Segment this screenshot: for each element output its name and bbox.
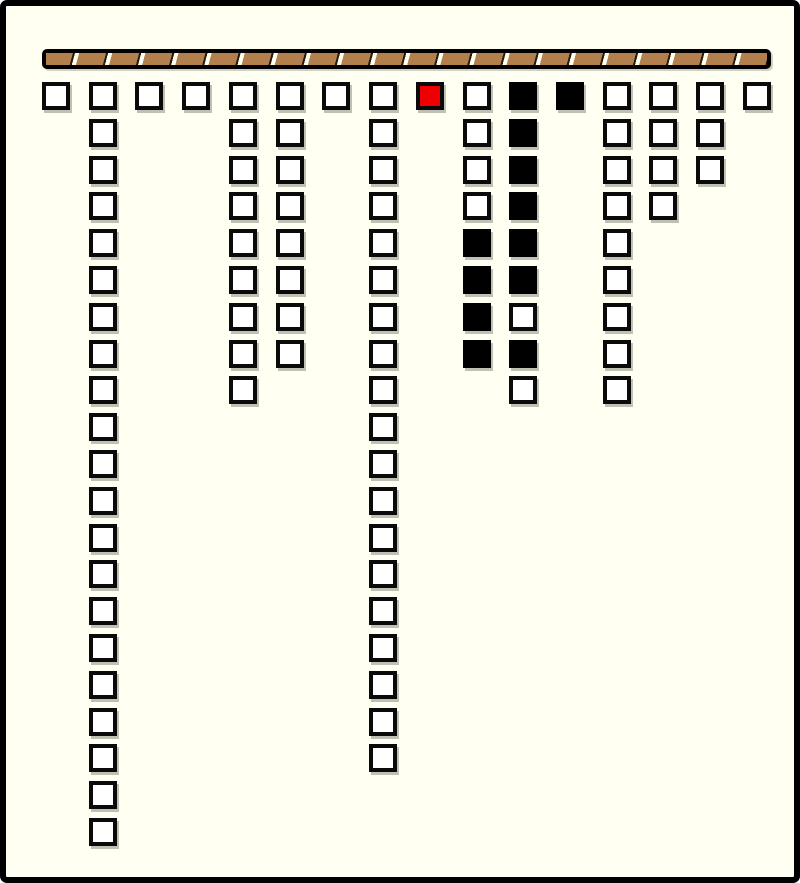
chain-cell-white[interactable] <box>229 376 257 404</box>
chain-cell-white[interactable] <box>649 192 677 220</box>
chain-cell-white[interactable] <box>276 340 304 368</box>
chain-cell-white[interactable] <box>369 340 397 368</box>
rope-stripes-pattern <box>46 53 767 65</box>
chain-cell-white[interactable] <box>369 634 397 662</box>
chain-cell-white[interactable] <box>276 192 304 220</box>
chain-cell-white[interactable] <box>229 192 257 220</box>
chain-cell-white[interactable] <box>369 82 397 110</box>
chain-cell-white[interactable] <box>369 413 397 441</box>
chain-cell-white[interactable] <box>89 450 117 478</box>
chain-cell-white[interactable] <box>182 82 210 110</box>
chain-cell-black[interactable] <box>463 303 491 331</box>
chain-cell-white[interactable] <box>276 156 304 184</box>
chain-cell-white[interactable] <box>229 156 257 184</box>
chain-cell-white[interactable] <box>135 82 163 110</box>
chain-cell-white[interactable] <box>89 634 117 662</box>
chain-cell-white[interactable] <box>89 597 117 625</box>
chain-cell-white[interactable] <box>369 560 397 588</box>
chain-cell-black[interactable] <box>509 266 537 294</box>
chain-cell-white[interactable] <box>369 597 397 625</box>
chain-cell-white[interactable] <box>276 82 304 110</box>
rope-rail <box>42 49 771 69</box>
chain-cell-white[interactable] <box>89 156 117 184</box>
chain-cell-white[interactable] <box>276 303 304 331</box>
chain-cell-black[interactable] <box>509 156 537 184</box>
chain-cell-white[interactable] <box>369 450 397 478</box>
chain-cell-white[interactable] <box>369 744 397 772</box>
chain-cell-white[interactable] <box>369 487 397 515</box>
chain-cell-white[interactable] <box>649 119 677 147</box>
chain-cell-white[interactable] <box>603 156 631 184</box>
chain-cell-white[interactable] <box>89 744 117 772</box>
chain-cell-white[interactable] <box>89 229 117 257</box>
chain-cell-white[interactable] <box>229 229 257 257</box>
chain-cell-white[interactable] <box>42 82 70 110</box>
chain-cell-white[interactable] <box>229 266 257 294</box>
chain-cell-black[interactable] <box>509 192 537 220</box>
chain-cell-white[interactable] <box>649 82 677 110</box>
chain-cell-white[interactable] <box>603 376 631 404</box>
chain-cell-white[interactable] <box>369 156 397 184</box>
chain-cell-white[interactable] <box>89 340 117 368</box>
chain-cell-white[interactable] <box>89 671 117 699</box>
chain-cell-white[interactable] <box>322 82 350 110</box>
chain-cell-black[interactable] <box>463 229 491 257</box>
chain-cell-white[interactable] <box>89 708 117 736</box>
chain-cell-white[interactable] <box>603 266 631 294</box>
chain-cell-white[interactable] <box>369 671 397 699</box>
chain-cell-white[interactable] <box>369 229 397 257</box>
chain-cell-white[interactable] <box>603 303 631 331</box>
chain-cell-white[interactable] <box>369 266 397 294</box>
chain-cell-white[interactable] <box>649 156 677 184</box>
chain-cell-black[interactable] <box>509 229 537 257</box>
chain-cell-white[interactable] <box>89 781 117 809</box>
chain-cell-black[interactable] <box>509 119 537 147</box>
chain-cell-white[interactable] <box>369 192 397 220</box>
chain-cell-white[interactable] <box>603 229 631 257</box>
chain-cell-white[interactable] <box>276 119 304 147</box>
chain-cell-black[interactable] <box>556 82 584 110</box>
chains-board-frame <box>0 0 800 883</box>
chain-cell-white[interactable] <box>603 119 631 147</box>
chain-cell-white[interactable] <box>89 303 117 331</box>
chain-cell-white[interactable] <box>369 119 397 147</box>
chain-cell-white[interactable] <box>696 119 724 147</box>
chain-cell-black[interactable] <box>463 340 491 368</box>
chain-cell-white[interactable] <box>509 376 537 404</box>
chain-cell-red[interactable] <box>416 82 444 110</box>
chain-cell-white[interactable] <box>89 192 117 220</box>
chain-cell-white[interactable] <box>509 303 537 331</box>
chain-cell-white[interactable] <box>369 524 397 552</box>
chain-cell-white[interactable] <box>229 303 257 331</box>
chain-cell-white[interactable] <box>463 156 491 184</box>
chain-cell-black[interactable] <box>463 266 491 294</box>
chain-cell-white[interactable] <box>276 266 304 294</box>
chain-cell-white[interactable] <box>89 266 117 294</box>
chain-cell-white[interactable] <box>369 708 397 736</box>
chain-cell-white[interactable] <box>276 229 304 257</box>
chain-cell-white[interactable] <box>89 818 117 846</box>
chain-cell-black[interactable] <box>509 82 537 110</box>
chain-cell-white[interactable] <box>89 560 117 588</box>
chain-cell-white[interactable] <box>696 82 724 110</box>
chain-cell-white[interactable] <box>603 82 631 110</box>
chain-cell-white[interactable] <box>229 82 257 110</box>
chain-cell-white[interactable] <box>463 82 491 110</box>
chain-cell-white[interactable] <box>89 82 117 110</box>
chain-cell-white[interactable] <box>89 524 117 552</box>
chain-cell-white[interactable] <box>743 82 771 110</box>
chain-cell-white[interactable] <box>89 376 117 404</box>
chain-cell-black[interactable] <box>509 340 537 368</box>
chain-cell-white[interactable] <box>463 192 491 220</box>
chain-cell-white[interactable] <box>369 303 397 331</box>
chain-cell-white[interactable] <box>696 156 724 184</box>
chain-cell-white[interactable] <box>603 340 631 368</box>
chain-cell-white[interactable] <box>229 119 257 147</box>
chain-cell-white[interactable] <box>369 376 397 404</box>
chain-cell-white[interactable] <box>89 119 117 147</box>
chain-cell-white[interactable] <box>463 119 491 147</box>
chain-cell-white[interactable] <box>229 340 257 368</box>
chain-cell-white[interactable] <box>89 487 117 515</box>
chain-cell-white[interactable] <box>89 413 117 441</box>
chain-cell-white[interactable] <box>603 192 631 220</box>
